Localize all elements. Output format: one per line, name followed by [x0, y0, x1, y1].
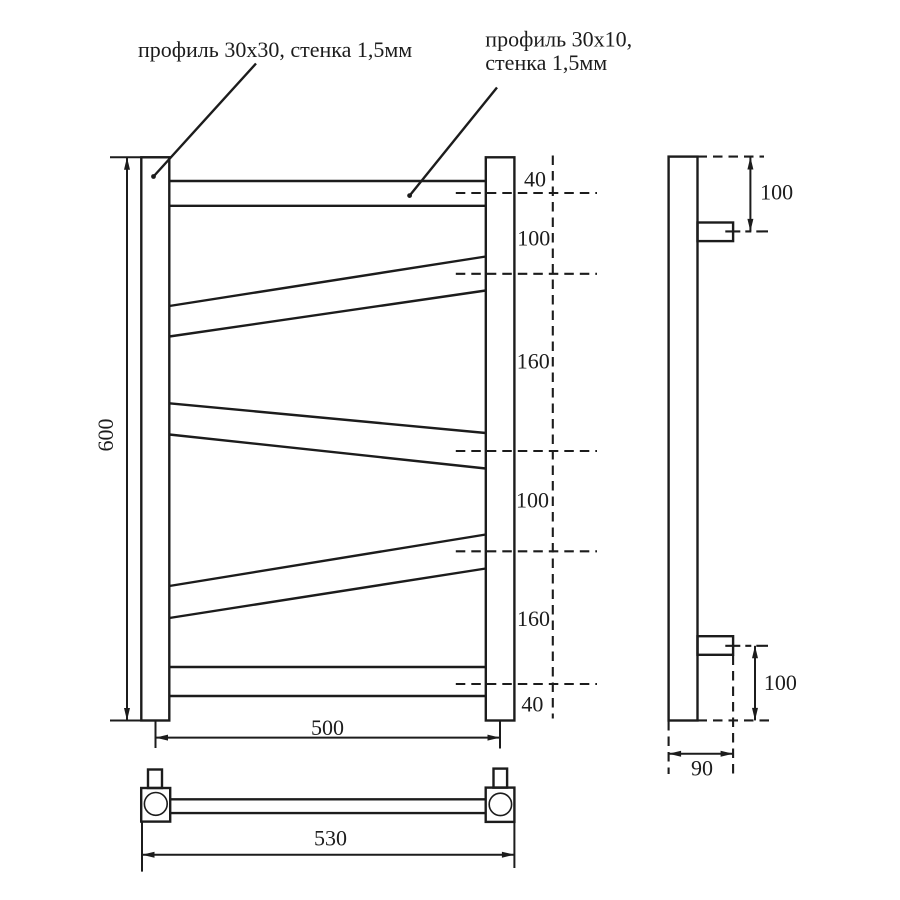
svg-text:стенка 1,5мм: стенка 1,5мм: [485, 50, 607, 75]
svg-text:600: 600: [93, 419, 118, 452]
svg-text:профиль 30х10,: профиль 30х10,: [485, 27, 632, 52]
svg-text:40: 40: [521, 692, 543, 717]
svg-text:100: 100: [760, 179, 793, 204]
svg-text:160: 160: [517, 606, 550, 631]
svg-text:160: 160: [517, 348, 550, 373]
svg-text:90: 90: [691, 756, 713, 781]
svg-text:530: 530: [314, 825, 347, 850]
svg-text:500: 500: [311, 715, 344, 740]
svg-text:100: 100: [517, 225, 550, 250]
svg-text:профиль 30х30, стенка 1,5мм: профиль 30х30, стенка 1,5мм: [138, 37, 412, 62]
svg-text:100: 100: [764, 670, 797, 695]
svg-text:100: 100: [516, 487, 549, 512]
svg-text:40: 40: [524, 167, 546, 192]
